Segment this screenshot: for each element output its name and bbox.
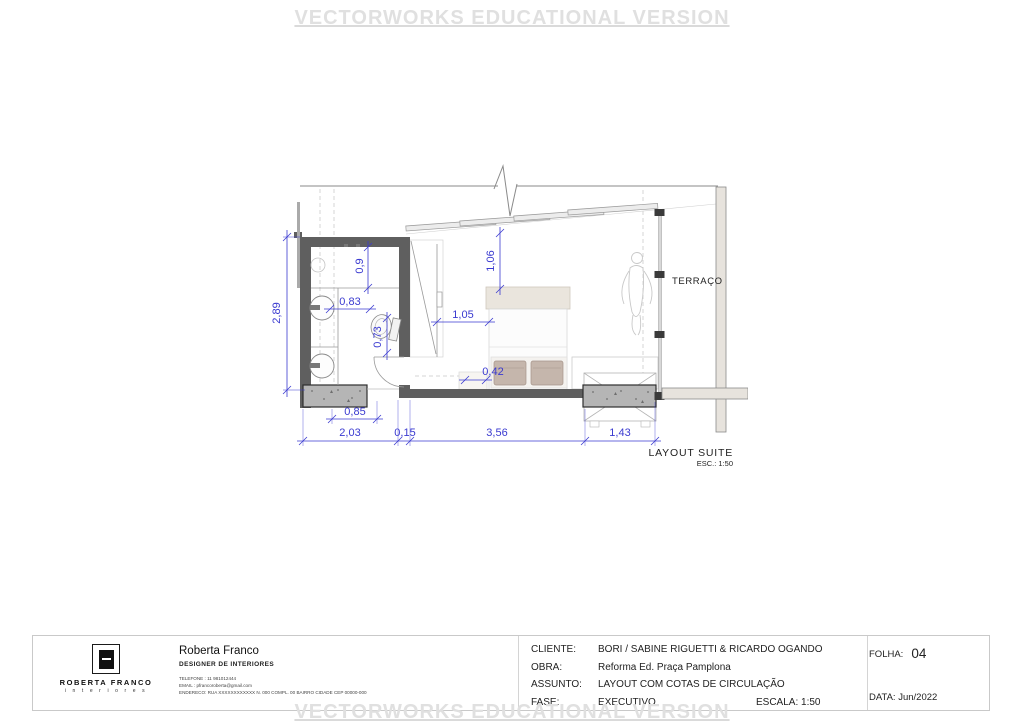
designer-email: EMAIL : pfrancoroberta@gmail.com: [179, 682, 367, 689]
floor-plan: 2,89 0,9 0,73 1,06 0,83 1,05 0,42 0,85 2…: [268, 160, 748, 475]
dim-toilet-clearance: 0,73: [372, 326, 384, 347]
field-value: Reforma Ed. Praça Pamplona: [598, 662, 731, 673]
field-label: OBRA:: [531, 662, 598, 673]
vent-mark: [356, 244, 360, 247]
field-value: LAYOUT COM COTAS DE CIRCULAÇÃO: [598, 679, 785, 690]
titleblock-divider: [518, 636, 519, 710]
sink: [310, 354, 334, 378]
plan-title: LAYOUT SUITE: [649, 447, 733, 459]
designer-name: Roberta Franco: [179, 645, 367, 657]
wall-left: [300, 237, 311, 408]
plan-scale-note: ESC.: 1:50: [697, 459, 733, 468]
field-label: CLIENTE:: [531, 644, 598, 655]
cushion: [531, 361, 563, 385]
designer-info: Roberta Franco DESIGNER DE INTERIORES TE…: [179, 645, 367, 696]
dim-shower-width: 0,9: [354, 258, 366, 273]
designer-address: ENDERECO: RUA XXXXXXXXXXXX N. 000 COMPL.…: [179, 689, 367, 696]
dim-vanity-clearance: 0,83: [339, 296, 360, 308]
person-figure: [622, 253, 652, 336]
designer-contact: TELEFONE : 11 981012444 EMAIL : pfrancor…: [179, 675, 367, 696]
field-cliente: CLIENTE: BORI / SABINE RIGUETTI & RICARD…: [531, 644, 861, 655]
logo-name: ROBERTA FRANCO: [51, 678, 161, 687]
folha-label: FOLHA:: [869, 649, 903, 660]
dim-bed-clearance-left: 1,05: [452, 309, 473, 321]
sink: [310, 296, 334, 320]
field-label: ASSUNTO:: [531, 679, 598, 690]
dim-bed-clearance-top: 1,06: [485, 250, 497, 271]
vectorworks-watermark-top: VECTORWORKS EDUCATIONAL VERSION: [0, 7, 1024, 30]
dim-concrete-left: 0,85: [344, 406, 365, 418]
titleblock-divider: [867, 636, 868, 710]
vectorworks-watermark-bottom: VECTORWORKS EDUCATIONAL VERSION: [0, 701, 1024, 724]
break-mark: [494, 166, 517, 216]
dim-door-clearance: 0,42: [482, 366, 503, 378]
shower-drain: [311, 258, 325, 272]
dim-bathroom-height: 2,89: [271, 302, 283, 323]
terrace-wall: [662, 187, 748, 432]
glass-partition: [659, 211, 662, 399]
folha-value: 04: [911, 646, 926, 661]
concrete-wall-left: [303, 385, 367, 407]
drawing-sheet: VECTORWORKS EDUCATIONAL VERSION: [0, 0, 1024, 724]
wardrobe: [410, 240, 443, 357]
sliding-glass-panels: [406, 203, 658, 231]
wardrobe-open-door: [411, 241, 436, 354]
title-block: ROBERTA FRANCO i n t e r i o r e s Rober…: [32, 635, 990, 711]
wall-top: [300, 237, 410, 247]
wall-suite-bottom: [410, 389, 585, 398]
concrete-wall-right: [583, 385, 656, 407]
sheet-number: FOLHA:04: [869, 646, 926, 661]
dimension-texts: 2,89 0,9 0,73 1,06 0,83 1,05 0,42 0,85 2…: [271, 250, 631, 439]
dim-chain-1: 2,03: [339, 427, 360, 439]
field-assunto: ASSUNTO: LAYOUT COM COTAS DE CIRCULAÇÃO: [531, 679, 861, 690]
shaft-line: [297, 202, 300, 288]
field-value: BORI / SABINE RIGUETTI & RICARDO OGANDO: [598, 644, 822, 655]
designer-phone: TELEFONE : 11 981012444: [179, 675, 367, 682]
glass-wall-guide: [406, 204, 716, 234]
dim-chain-4: 1,43: [609, 427, 630, 439]
field-obra: OBRA: Reforma Ed. Praça Pamplona: [531, 662, 861, 673]
terrace-label: TERRAÇO: [672, 276, 723, 287]
logo-subtitle: i n t e r i o r e s: [51, 688, 161, 694]
wall-right-upper: [399, 247, 410, 357]
door-swing: [374, 357, 404, 387]
dim-chain-3: 3,56: [486, 427, 507, 439]
vent-mark: [344, 244, 348, 247]
company-logo: ROBERTA FRANCO i n t e r i o r e s: [51, 644, 161, 694]
designer-role: DESIGNER DE INTERIORES: [179, 661, 367, 668]
logo-mark-icon: [92, 644, 120, 674]
dim-chain-2: 0,15: [394, 427, 415, 439]
